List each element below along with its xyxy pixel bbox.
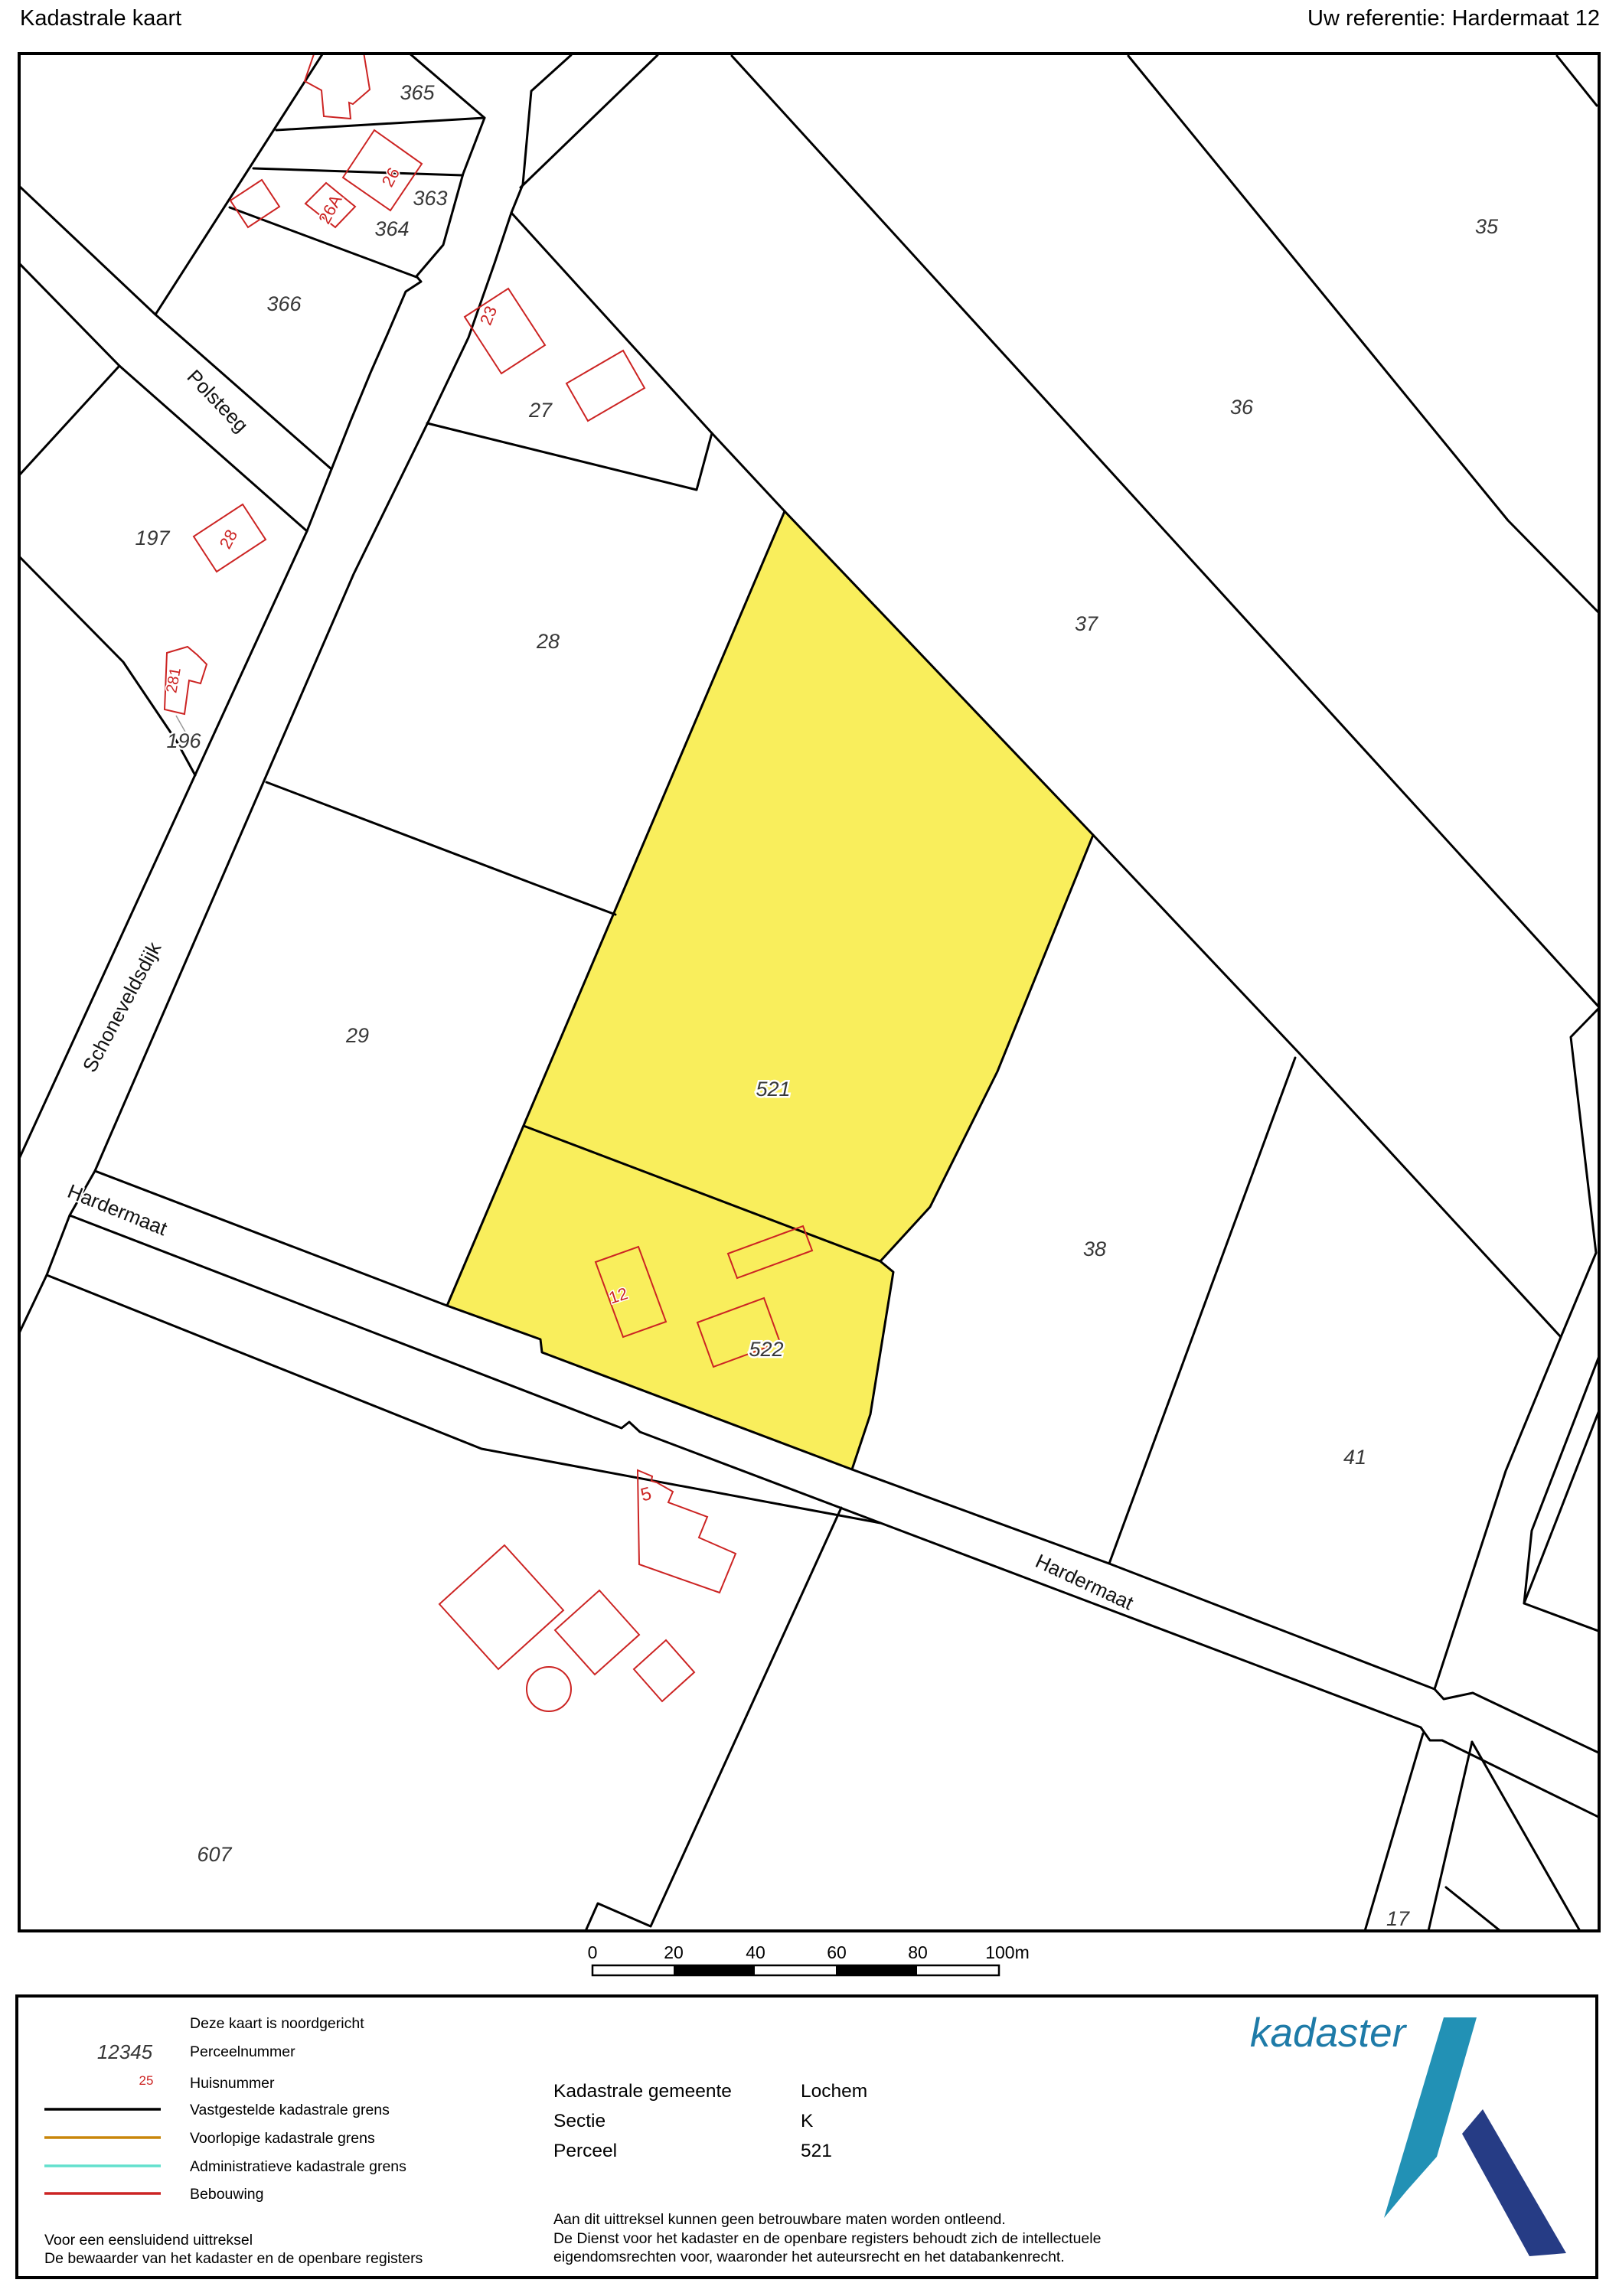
- svg-text:38: 38: [1083, 1238, 1106, 1261]
- svg-text:80: 80: [908, 1942, 928, 1962]
- svg-text:Voorlopige kadastrale grens: Voorlopige kadastrale grens: [190, 2130, 375, 2147]
- svg-text:Sectie: Sectie: [553, 2111, 605, 2131]
- svg-text:kadaster: kadaster: [1250, 2011, 1408, 2056]
- svg-text:41: 41: [1343, 1446, 1366, 1469]
- svg-text:29: 29: [345, 1024, 369, 1047]
- svg-text:eigendomsrechten voor, waarond: eigendomsrechten voor, waaronder het aut…: [553, 2249, 1065, 2265]
- svg-text:Lochem: Lochem: [801, 2081, 867, 2102]
- svg-text:De Dienst voor het kadaster en: De Dienst voor het kadaster en de openba…: [553, 2230, 1101, 2247]
- svg-text:28: 28: [536, 630, 560, 653]
- svg-text:36: 36: [1230, 396, 1254, 419]
- svg-text:365: 365: [400, 81, 435, 104]
- svg-text:37: 37: [1075, 612, 1098, 635]
- svg-text:Kadastrale kaart: Kadastrale kaart: [20, 6, 181, 31]
- svg-text:521: 521: [801, 2141, 832, 2161]
- svg-text:17: 17: [1386, 1907, 1410, 1930]
- svg-text:522: 522: [749, 1338, 783, 1361]
- svg-text:607: 607: [197, 1843, 232, 1866]
- svg-text:27: 27: [528, 399, 553, 422]
- svg-text:Kadastrale gemeente: Kadastrale gemeente: [553, 2081, 732, 2102]
- svg-text:Perceelnummer: Perceelnummer: [190, 2043, 295, 2060]
- svg-text:364: 364: [374, 217, 409, 240]
- svg-text:K: K: [801, 2111, 814, 2131]
- svg-text:Administratieve kadastrale gre: Administratieve kadastrale grens: [190, 2158, 406, 2175]
- svg-text:35: 35: [1475, 215, 1499, 238]
- svg-text:Voor een eensluidend uittrekse: Voor een eensluidend uittreksel: [44, 2232, 253, 2249]
- svg-text:60: 60: [827, 1942, 847, 1962]
- svg-text:25: 25: [139, 2073, 154, 2088]
- svg-text:Vastgestelde kadastrale grens: Vastgestelde kadastrale grens: [190, 2102, 390, 2118]
- svg-text:40: 40: [746, 1942, 765, 1962]
- svg-text:Perceel: Perceel: [553, 2141, 617, 2161]
- svg-text:521: 521: [756, 1078, 790, 1101]
- svg-text:100m: 100m: [985, 1942, 1030, 1962]
- svg-text:Bebouwing: Bebouwing: [190, 2186, 264, 2203]
- svg-text:197: 197: [135, 527, 170, 550]
- svg-text:Aan dit uittreksel kunnen geen: Aan dit uittreksel kunnen geen betrouwba…: [553, 2211, 1006, 2228]
- svg-text:12345: 12345: [97, 2040, 153, 2063]
- svg-text:Deze kaart is noordgericht: Deze kaart is noordgericht: [190, 2015, 364, 2032]
- svg-text:20: 20: [664, 1942, 684, 1962]
- svg-text:0: 0: [588, 1942, 598, 1962]
- svg-text:363: 363: [413, 187, 447, 210]
- svg-text:Huisnummer: Huisnummer: [190, 2075, 275, 2092]
- svg-text:Uw referentie: Hardermaat 12: Uw referentie: Hardermaat 12: [1307, 6, 1600, 31]
- svg-text:366: 366: [266, 292, 302, 315]
- svg-text:De bewaarder van het kadaster: De bewaarder van het kadaster en de open…: [44, 2250, 423, 2267]
- svg-text:196: 196: [166, 729, 201, 752]
